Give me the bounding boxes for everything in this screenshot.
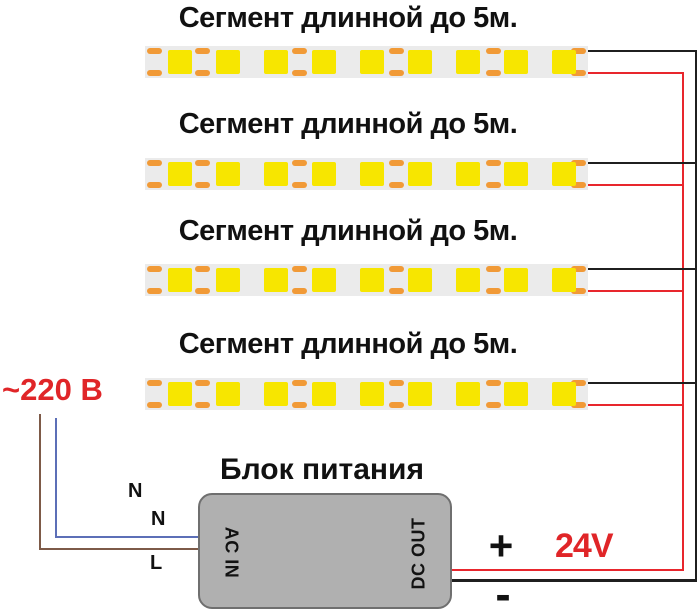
cut-mark: [195, 402, 210, 408]
cut-mark: [292, 288, 307, 294]
cut-mark: [486, 70, 501, 76]
led-chip: [408, 268, 432, 292]
wiring-diagram: Сегмент длинной до 5м.Сегмент длинной до…: [0, 0, 700, 616]
led-chip: [552, 50, 576, 74]
cut-mark: [486, 380, 501, 386]
led-chip: [264, 268, 288, 292]
solder-pad: [147, 48, 162, 54]
segment-wire-black: [588, 268, 697, 270]
led-chip: [408, 382, 432, 406]
led-chip: [552, 268, 576, 292]
cut-mark: [292, 402, 307, 408]
segment-wire-black: [588, 50, 697, 52]
cut-mark: [292, 266, 307, 272]
cut-mark: [292, 70, 307, 76]
led-strip: [145, 264, 588, 296]
led-chip: [312, 162, 336, 186]
solder-pad: [147, 288, 162, 294]
led-chip: [360, 382, 384, 406]
wire-l-label: L: [150, 552, 162, 575]
solder-pad: [147, 182, 162, 188]
cut-mark: [195, 48, 210, 54]
led-chip: [504, 382, 528, 406]
led-chip: [312, 382, 336, 406]
led-chip: [168, 50, 192, 74]
cut-mark: [292, 380, 307, 386]
led-chip: [552, 382, 576, 406]
mains-blue-wire-v: [55, 418, 57, 538]
led-chip: [216, 162, 240, 186]
bus-red: [682, 72, 684, 571]
led-chip: [552, 162, 576, 186]
solder-pad: [147, 160, 162, 166]
segment-wire-red: [588, 184, 684, 186]
mains-blue-wire-h: [55, 536, 198, 538]
cut-mark: [292, 182, 307, 188]
minus-label: -: [489, 570, 517, 616]
led-chip: [312, 50, 336, 74]
led-chip: [504, 162, 528, 186]
cut-mark: [486, 182, 501, 188]
led-chip: [408, 162, 432, 186]
led-chip: [504, 268, 528, 292]
led-chip: [216, 382, 240, 406]
cut-mark: [292, 48, 307, 54]
led-strip: [145, 378, 588, 410]
led-chip: [456, 162, 480, 186]
cut-mark: [389, 402, 404, 408]
psu-red-wire: [452, 569, 684, 571]
segment-title: Сегмент длинной до 5м.: [148, 215, 548, 248]
ac-in-label: AC IN: [221, 518, 242, 588]
led-chip: [456, 382, 480, 406]
led-strip: [145, 46, 588, 78]
cut-mark: [195, 380, 210, 386]
segment-title: Сегмент длинной до 5м.: [148, 328, 548, 361]
led-chip: [408, 50, 432, 74]
led-chip: [168, 382, 192, 406]
cut-mark: [195, 182, 210, 188]
led-chip: [312, 268, 336, 292]
cut-mark: [486, 48, 501, 54]
cut-mark: [486, 160, 501, 166]
segment-title: Сегмент длинной до 5м.: [148, 108, 548, 141]
led-chip: [456, 50, 480, 74]
solder-pad: [147, 70, 162, 76]
wire-n-label-2: N: [151, 508, 165, 531]
cut-mark: [195, 70, 210, 76]
cut-mark: [486, 266, 501, 272]
segment-wire-red: [588, 404, 684, 406]
cut-mark: [389, 70, 404, 76]
solder-pad: [147, 380, 162, 386]
led-chip: [360, 268, 384, 292]
led-chip: [216, 268, 240, 292]
plus-label: +: [485, 524, 517, 568]
cut-mark: [389, 288, 404, 294]
cut-mark: [389, 380, 404, 386]
cut-mark: [389, 182, 404, 188]
led-strip: [145, 158, 588, 190]
cut-mark: [389, 48, 404, 54]
led-chip: [216, 50, 240, 74]
solder-pad: [147, 266, 162, 272]
cut-mark: [389, 160, 404, 166]
led-chip: [360, 162, 384, 186]
dc-out-label: DC OUT: [409, 512, 430, 596]
segment-wire-red: [588, 290, 684, 292]
led-chip: [360, 50, 384, 74]
cut-mark: [486, 288, 501, 294]
cut-mark: [195, 266, 210, 272]
led-chip: [264, 50, 288, 74]
cut-mark: [195, 288, 210, 294]
led-chip: [168, 162, 192, 186]
cut-mark: [486, 402, 501, 408]
segment-title: Сегмент длинной до 5м.: [148, 2, 548, 35]
cut-mark: [292, 160, 307, 166]
led-chip: [168, 268, 192, 292]
led-chip: [456, 268, 480, 292]
led-chip: [504, 50, 528, 74]
cut-mark: [389, 266, 404, 272]
mains-voltage-label: ~220 В: [2, 372, 103, 408]
wire-n-label-1: N: [128, 480, 142, 503]
segment-wire-red: [588, 72, 684, 74]
solder-pad: [147, 402, 162, 408]
mains-brown-wire-v: [39, 414, 41, 550]
segment-wire-black: [588, 382, 697, 384]
output-voltage-label: 24V: [555, 527, 613, 566]
cut-mark: [195, 160, 210, 166]
segment-wire-black: [588, 162, 697, 164]
psu-title: Блок питания: [172, 453, 472, 487]
bus-black: [695, 50, 697, 582]
led-chip: [264, 162, 288, 186]
led-chip: [264, 382, 288, 406]
mains-brown-wire-h: [39, 548, 198, 550]
